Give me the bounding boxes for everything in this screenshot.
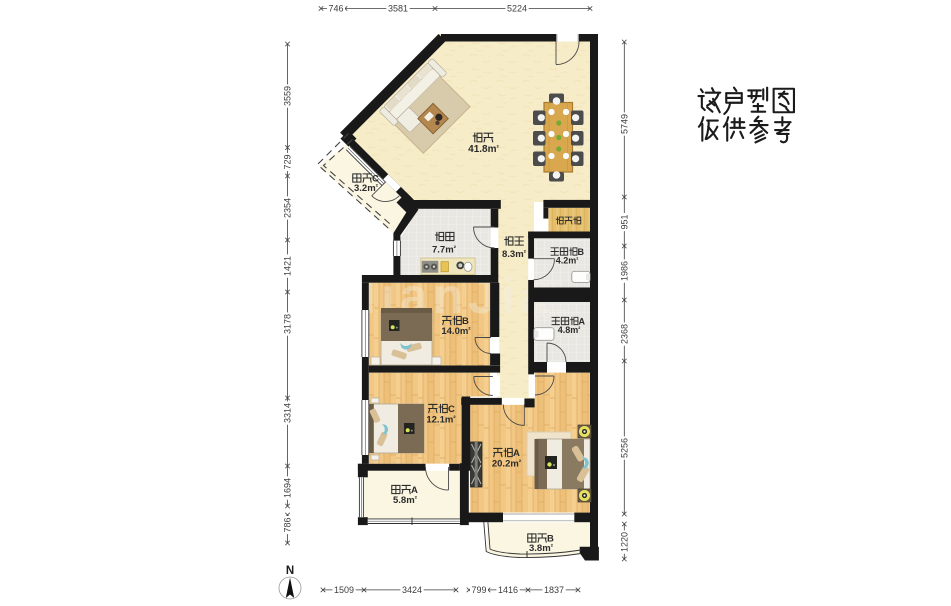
svg-text:5224: 5224 — [507, 4, 527, 14]
svg-text:8.3m²: 8.3m² — [502, 249, 527, 260]
svg-text:799: 799 — [471, 585, 486, 595]
svg-text:5256: 5256 — [620, 438, 630, 458]
svg-text:3178: 3178 — [283, 314, 293, 334]
svg-text:7.7m²: 7.7m² — [432, 244, 457, 255]
svg-text:5.8m²: 5.8m² — [393, 495, 418, 506]
svg-text:951: 951 — [620, 214, 630, 229]
svg-text:1220: 1220 — [620, 532, 630, 552]
svg-text:786: 786 — [283, 517, 293, 532]
svg-text:A: A — [513, 448, 520, 459]
svg-text:4.8m²: 4.8m² — [558, 325, 581, 335]
svg-text:A: A — [579, 317, 586, 327]
svg-text:729: 729 — [283, 154, 293, 169]
svg-text:41.8m²: 41.8m² — [468, 144, 499, 155]
svg-text:3.8m²: 3.8m² — [529, 543, 554, 554]
svg-text:12.1m²: 12.1m² — [426, 414, 456, 425]
svg-text:1986: 1986 — [620, 261, 630, 281]
svg-text:1837: 1837 — [544, 585, 564, 595]
svg-text:1694: 1694 — [283, 478, 293, 498]
svg-text:2354: 2354 — [283, 198, 293, 218]
svg-text:3559: 3559 — [283, 86, 293, 106]
svg-text:14.0m²: 14.0m² — [441, 326, 471, 337]
svg-text:3314: 3314 — [283, 403, 293, 423]
svg-text:B: B — [578, 247, 585, 257]
svg-text:5749: 5749 — [620, 114, 630, 134]
svg-text:3424: 3424 — [402, 585, 422, 595]
svg-text:3.2m²: 3.2m² — [354, 183, 379, 194]
svg-text:1416: 1416 — [498, 585, 518, 595]
svg-text:N: N — [286, 565, 294, 577]
svg-text:4.2m²: 4.2m² — [556, 256, 579, 266]
svg-text:1421: 1421 — [283, 256, 293, 276]
svg-text:C: C — [448, 404, 455, 415]
svg-text:2368: 2368 — [620, 324, 630, 344]
svg-text:746: 746 — [328, 4, 343, 14]
svg-text:1509: 1509 — [334, 585, 354, 595]
svg-text:3581: 3581 — [388, 4, 408, 14]
svg-text:20.2m²: 20.2m² — [492, 458, 522, 469]
